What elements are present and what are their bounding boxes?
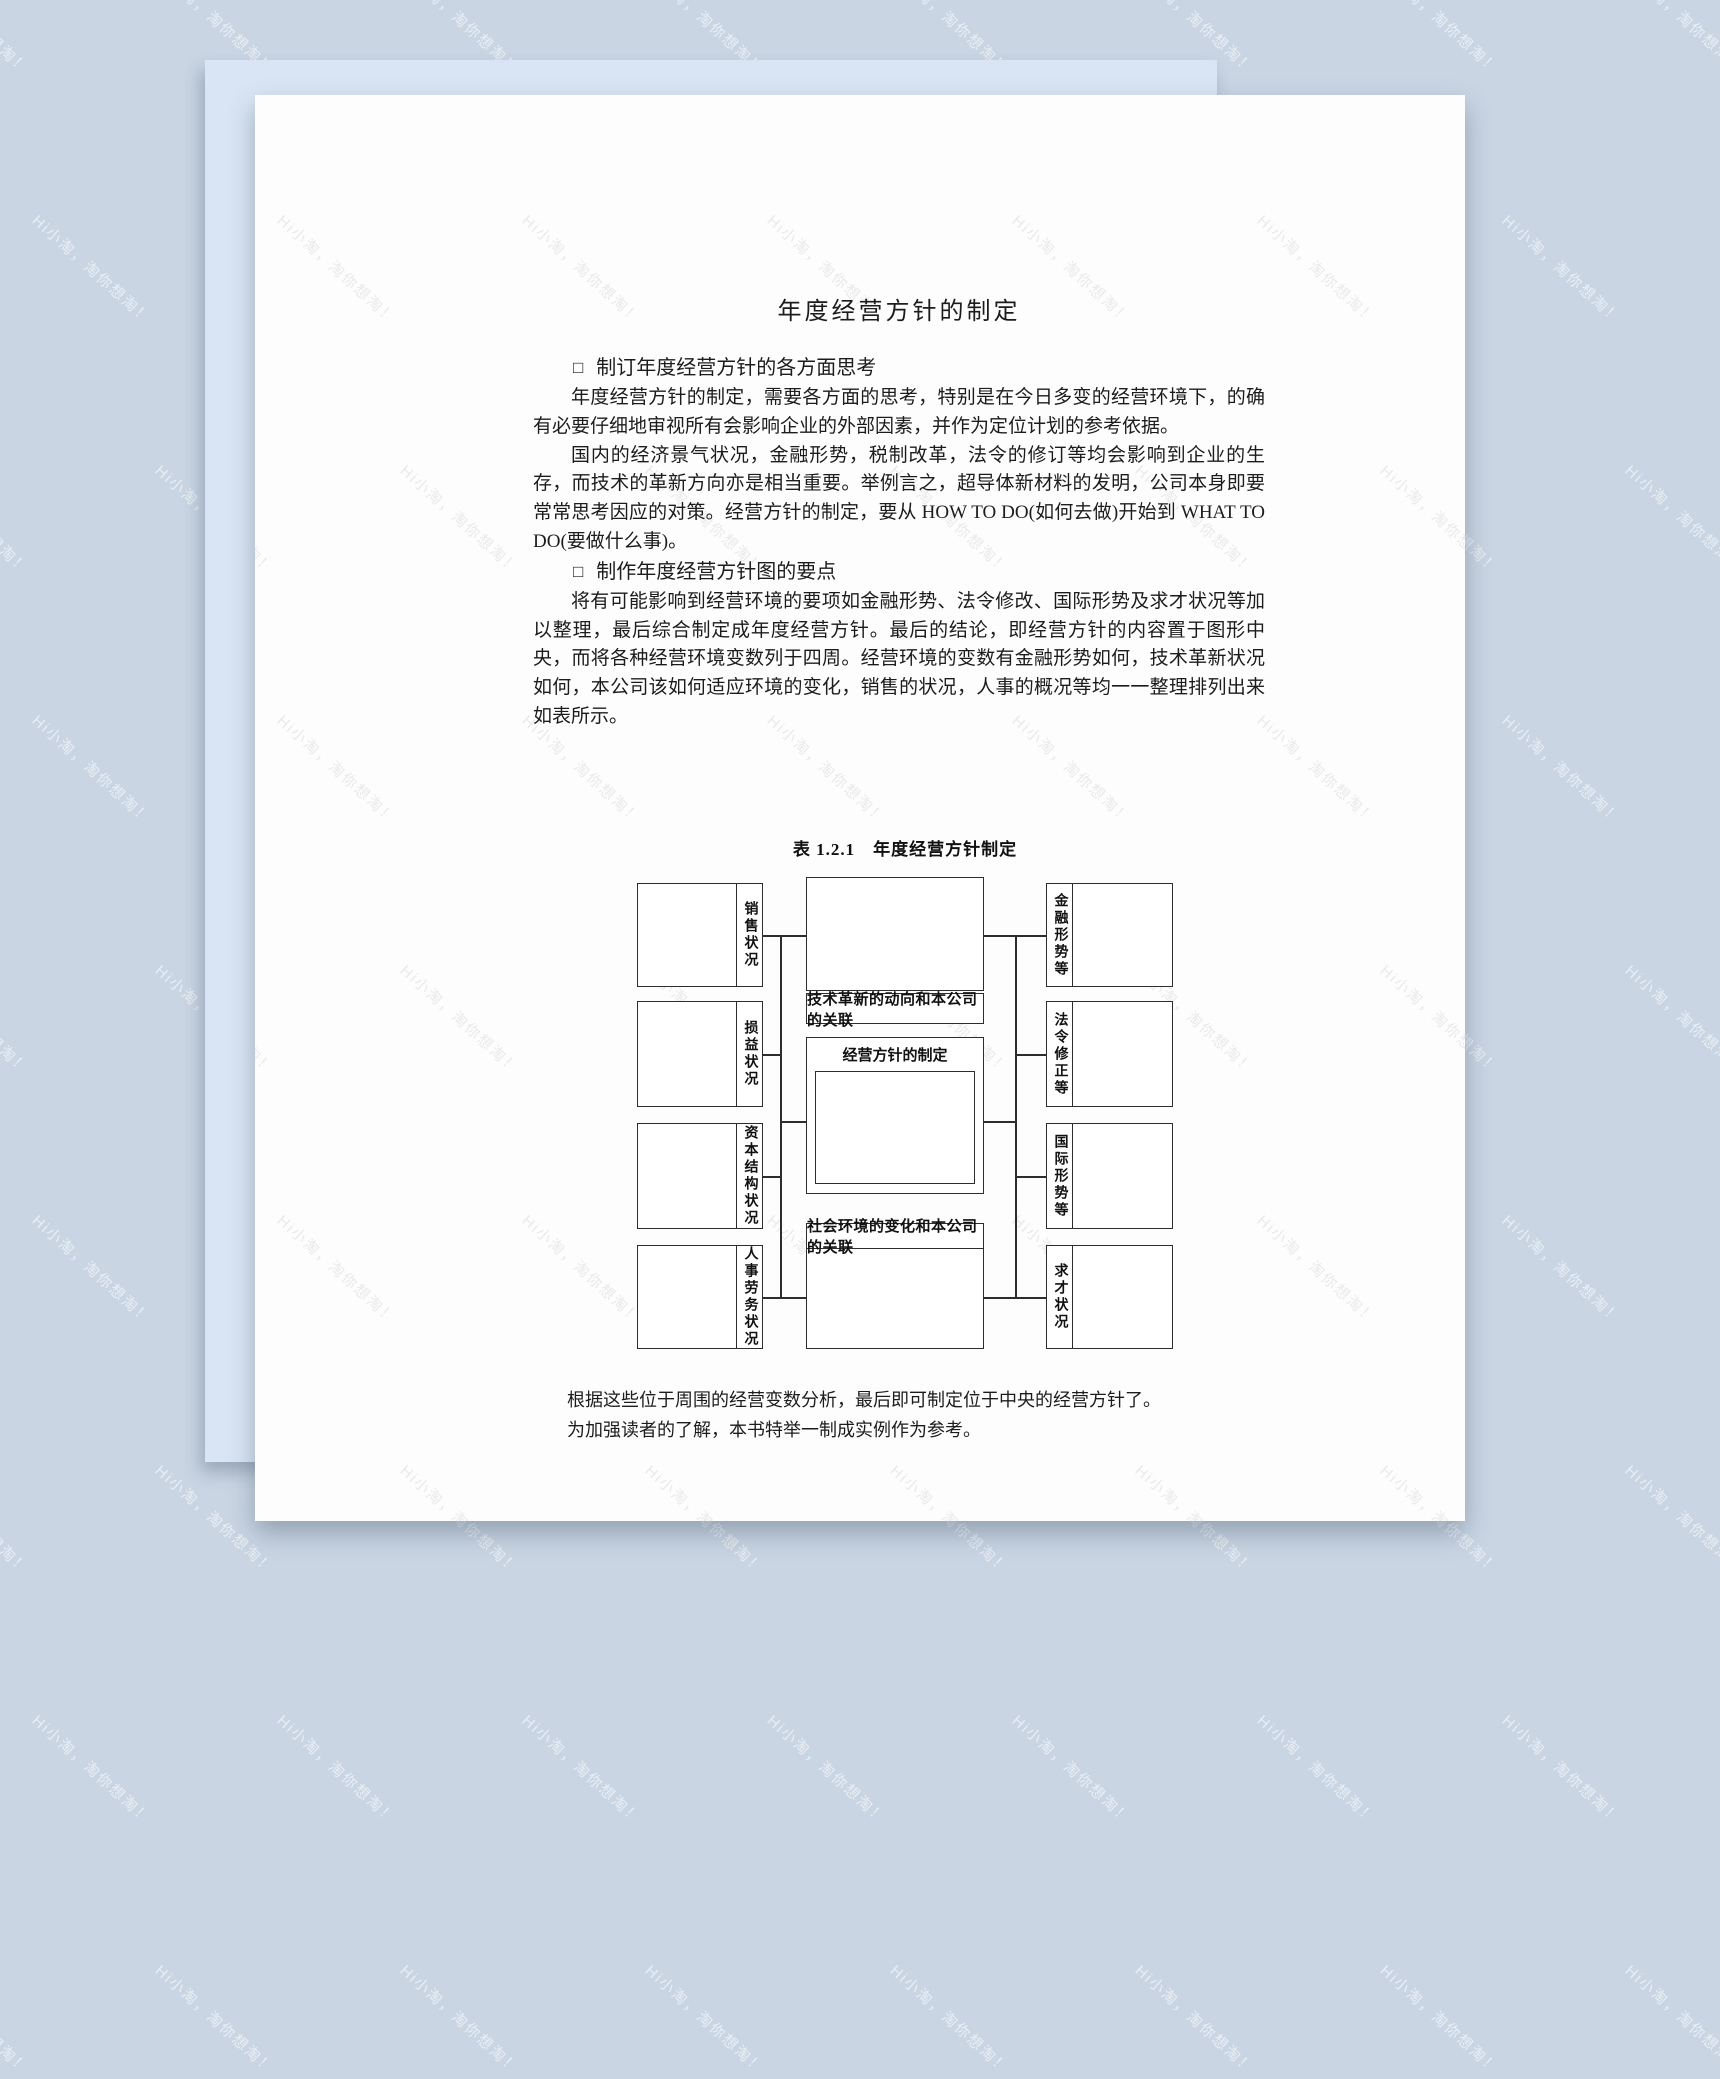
diagram-box-profit-loss-status: 损益状况 [637,1001,763,1107]
document-page: Hi小淘，淘你想淘！Hi小淘，淘你想淘！Hi小淘，淘你想淘！Hi小淘，淘你想淘！… [255,95,1465,1521]
watermark-text: Hi小淘，淘你想淘！ [1376,0,1505,79]
box-title: 经营方针的制定 [807,1044,983,1065]
square-bullet-icon: □ [573,353,583,383]
diagram-strip-tech-innovation: 技术革新的动向和本公司的关联 [806,993,984,1024]
diagram-box-personnel-labor-status: 人事劳务状况 [637,1245,763,1349]
connector-line [983,935,1046,937]
diagram-box-law-amendment: 法令修正等 [1046,1001,1173,1107]
watermark-text: Hi小淘，淘你想淘！ [1131,1960,1260,2079]
connector-line [762,935,807,937]
watermark-text: Hi小淘，淘你想淘！ [1621,0,1720,79]
watermark-text: Hi小淘，淘你想淘！ [1498,210,1627,329]
diagram-box-policy-formulation: 经营方针的制定 [806,1037,984,1194]
watermark-text: Hi小淘，淘你想淘！ [763,1710,892,1829]
connector-left-spine [780,935,782,1298]
box-header: 社会环境的变化和本公司的关联 [807,1224,983,1249]
paragraph: 将有可能影响到经营环境的要项如金融形势、法令修改、国际形势及求才状况等加以整理，… [533,588,1265,732]
box-label: 国际形势等 [1053,1134,1067,1219]
watermark-text: Hi小淘，淘你想淘！ [641,1960,770,2079]
connector-line [762,1176,781,1178]
figure-caption: 表 1.2.1 年度经营方针制定 [637,835,1173,860]
box-label: 损益状况 [743,1020,757,1088]
section-heading-1-text: 制订年度经营方针的各方面思考 [596,357,876,379]
closing-line: 为加强读者的了解，本书特举一制成实例作为参考。 [567,1415,1213,1445]
closing-line: 根据这些位于周围的经营变数分析，最后即可制定位于中央的经营方针了。 [567,1385,1213,1415]
paragraph: 国内的经济景气状况，金融形势，税制改革，法令的修订等均会影响到企业的生存，而技术… [533,442,1265,557]
diagram-box-financial-situation: 金融形势等 [1046,883,1173,987]
watermark-text: Hi小淘，淘你想淘！ [273,1710,402,1829]
paragraph: 年度经营方针的制定，需要各方面的思考，特别是在今日多变的经营环境下，的确有必要仔… [533,384,1265,442]
box-label: 法令修正等 [1053,1012,1067,1097]
connector-line [983,1121,1016,1123]
watermark-text: Hi小淘，淘你想淘！ [28,1210,157,1329]
box-label: 求才状况 [1053,1263,1067,1331]
watermark-text: Hi小淘，淘你想淘！ [1498,1210,1627,1329]
watermark-text: Hi小淘，淘你想淘！ [1621,1460,1720,1579]
box-label: 资本结构状况 [743,1125,757,1227]
connector-line [762,1054,781,1056]
connector-right-spine [1015,935,1017,1298]
watermark-text: Hi小淘，淘你想淘！ [1621,460,1720,579]
inner-box [815,1071,975,1184]
watermark-text: Hi小淘，淘你想淘！ [1621,960,1720,1079]
connector-line [1015,1054,1046,1056]
connector-line [1015,1176,1046,1178]
watermark-text: Hi小淘，淘你想淘！ [28,710,157,829]
square-bullet-icon: □ [573,557,583,587]
connector-line [762,1297,807,1299]
watermark-text: Hi小淘，淘你想淘！ [1621,1960,1720,2079]
watermark-text: Hi小淘，淘你想淘！ [518,1710,647,1829]
section-heading-2-text: 制作年度经营方针图的要点 [596,561,836,583]
watermark-text: Hi小淘，淘你想淘！ [886,1960,1015,2079]
diagram-box-center-top [806,877,984,991]
box-label: 销售状况 [743,901,757,969]
diagram-box-recruiting-status: 求才状况 [1046,1245,1173,1349]
watermark-text: Hi小淘，淘你想淘！ [0,0,35,79]
connector-line [983,1297,1046,1299]
watermark-text: Hi小淘，淘你想淘！ [28,210,157,329]
diagram-box-capital-structure-status: 资本结构状况 [637,1123,763,1229]
document-body: 年度经营方针的制定 □制订年度经营方针的各方面思考 年度经营方针的制定，需要各方… [533,291,1265,732]
watermark-text: Hi小淘，淘你想淘！ [1008,1710,1137,1829]
watermark-text: Hi小淘，淘你想淘！ [1376,1960,1505,2079]
closing-paragraphs: 根据这些位于周围的经营变数分析，最后即可制定位于中央的经营方针了。 为加强读者的… [567,1385,1213,1445]
watermark-text: Hi小淘，淘你想淘！ [0,1960,35,2079]
figure-diagram: 表 1.2.1 年度经营方针制定 销售状况 损益状况 资本结构状况 人事劳务状况… [637,821,1173,1361]
watermark-text: Hi小淘，淘你想淘！ [396,1960,525,2079]
box-label: 人事劳务状况 [743,1246,757,1348]
connector-line [780,1121,807,1123]
watermark-text: Hi小淘，淘你想淘！ [151,1960,280,2079]
box-label: 金融形势等 [1053,893,1067,978]
watermark-text: Hi小淘，淘你想淘！ [28,1710,157,1829]
watermark-text: Hi小淘，淘你想淘！ [0,1460,35,1579]
diagram-box-social-environment: 社会环境的变化和本公司的关联 [806,1223,984,1349]
page-title: 年度经营方针的制定 [533,291,1265,326]
section-heading-1: □制订年度经营方针的各方面思考 [533,353,1265,384]
watermark-text: Hi小淘，淘你想淘！ [1253,1710,1382,1829]
section-heading-2: □制作年度经营方针图的要点 [533,557,1265,588]
watermark-text: Hi小淘，淘你想淘！ [0,460,35,579]
watermark-text: Hi小淘，淘你想淘！ [1498,710,1627,829]
watermark-text: Hi小淘，淘你想淘！ [1498,1710,1627,1829]
watermark-text: Hi小淘，淘你想淘！ [0,960,35,1079]
diagram-box-international-situation: 国际形势等 [1046,1123,1173,1229]
diagram-box-sales-status: 销售状况 [637,883,763,987]
desktop-background: { "colors":{"background":"#c9d5e3","back… [0,0,1720,1826]
